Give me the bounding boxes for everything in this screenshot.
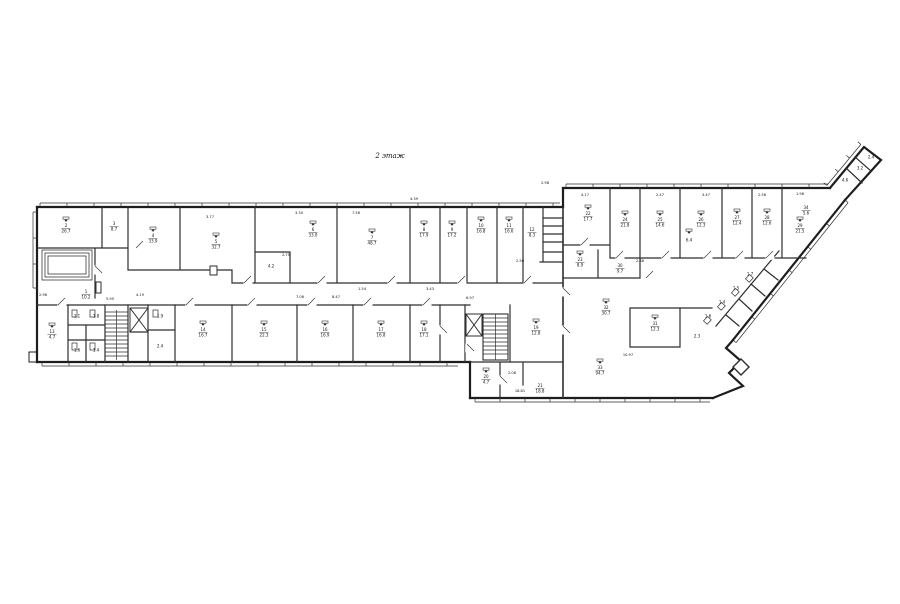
desk-icon [533,319,539,321]
svg-text:32: 32 [603,305,609,310]
room-label: 2514.6 [656,211,665,228]
svg-text:17.2: 17.2 [448,233,457,238]
svg-text:8.9: 8.9 [577,263,584,268]
chair-icon [263,324,265,326]
svg-text:14.6: 14.6 [656,223,665,228]
desk-icon [49,323,55,325]
desk-icon [657,211,663,213]
dimension-label: 2.56 [516,259,525,263]
sanitary-fixtures [72,274,753,350]
svg-text:11: 11 [506,223,512,228]
desk-icon [200,321,206,323]
chair-icon [423,224,425,226]
dimension-label: 4.39 [410,197,419,201]
chair-icon [535,322,537,324]
dimension-label: 7.06 [296,295,305,299]
dimension-label: 1.98 [796,192,805,196]
svg-text:1.5: 1.5 [733,286,740,291]
svg-text:24: 24 [622,217,628,222]
room-label: 433.9 [149,227,158,244]
svg-text:94.7: 94.7 [596,371,605,376]
dimension-label: 2.98 [541,181,550,185]
room-label: 1.6 [74,348,81,353]
chair-icon [688,232,690,234]
room-label: 2921.5 [796,217,805,234]
desk-icon [478,217,484,219]
chair-icon [480,220,482,222]
svg-text:3: 3 [113,221,116,226]
chair-icon [736,212,738,214]
courtyard-steps [42,250,92,280]
room-label: 633.0 [309,221,318,238]
desk-icon [378,321,384,323]
svg-text:17: 17 [378,327,384,332]
svg-text:17.7: 17.7 [584,217,593,222]
desk-icon [622,211,628,213]
room-label: 1016.8 [477,217,486,234]
room-label: 2.3 [694,334,701,339]
chair-icon [508,220,510,222]
room-label: 38.7 [110,221,119,232]
floor-plan-drawing: 2 этаж [0,0,900,604]
dimension-label: 5.95 [106,297,114,301]
room-label: 1817.1 [420,321,429,338]
svg-text:1.9: 1.9 [157,314,164,319]
svg-text:7: 7 [371,235,374,240]
svg-text:1.4: 1.4 [93,348,100,353]
room-label: 2.4 [157,344,164,349]
svg-text:2.4: 2.4 [157,344,164,349]
dimension-label: 2.47 [656,193,664,197]
chair-icon [605,302,607,304]
svg-text:20: 20 [483,374,489,379]
svg-text:2.1: 2.1 [74,314,81,319]
dimension-label: 10.97 [623,353,633,357]
svg-text:27: 27 [734,215,740,220]
chair-icon [659,214,661,216]
chair-icon [579,254,581,256]
chair-icon [51,326,53,328]
room-label: 1.6 [705,314,712,319]
svg-text:1: 1 [85,289,88,294]
svg-text:26: 26 [698,217,704,222]
desk-icon [310,221,316,223]
chair-icon [599,362,601,364]
room-label: 1616.9 [321,321,330,338]
svg-text:33.0: 33.0 [309,233,318,238]
dimension-label: 8.47 [332,295,340,299]
room-label: 309.7 [616,263,625,274]
svg-text:8.3: 8.3 [529,233,536,238]
svg-text:2: 2 [65,223,68,228]
svg-text:32.7: 32.7 [212,245,221,250]
svg-text:1.8: 1.8 [93,314,100,319]
svg-text:25: 25 [657,217,663,222]
svg-text:17.1: 17.1 [420,333,429,338]
chair-icon [451,224,453,226]
svg-text:12.4: 12.4 [733,221,742,226]
room-label: 3394.7 [596,359,605,376]
room-label: 1522.3 [260,321,269,338]
desk-icon [686,229,692,231]
svg-text:12.8: 12.8 [532,331,541,336]
room-labels-layer: 226.738.7433.9532.7633.04.2748.7817.9917… [48,155,875,394]
svg-text:16: 16 [322,327,328,332]
desk-icon [506,217,512,219]
desk-icon [603,299,609,301]
dimension-label: 6.97 [466,296,474,300]
staircase-center [483,314,508,360]
svg-text:30.7: 30.7 [602,311,611,316]
chair-icon [799,220,801,222]
room-label: 1.4 [719,300,726,305]
dimension-label: 2.88 [636,259,645,263]
corner-bay [733,359,749,375]
desk-icon [698,211,704,213]
room-label: 110.2 [82,289,91,300]
chair-icon [654,318,656,320]
svg-text:4.2: 4.2 [268,264,275,269]
svg-text:9.7: 9.7 [617,269,624,274]
svg-text:2.3: 2.3 [694,334,701,339]
svg-text:26.7: 26.7 [62,229,71,234]
room-label: 2712.4 [733,209,742,226]
dimension-label: 2.56 [758,193,767,197]
svg-text:33.9: 33.9 [149,239,158,244]
room-label: 3112.3 [651,315,660,332]
chair-icon [624,214,626,216]
room-label: 1116.6 [505,217,514,234]
room-label: 128.3 [528,227,537,238]
room-label: 1.7 [747,272,754,277]
room-label: 1716.8 [377,321,386,338]
floor-plan-page: 2 этаж [0,0,900,604]
svg-text:5.6: 5.6 [803,211,810,216]
svg-text:3.2: 3.2 [857,166,864,171]
dimension-label: 2.75 [282,253,290,257]
desk-icon [421,221,427,223]
svg-text:4: 4 [152,233,155,238]
svg-text:15: 15 [261,327,267,332]
svg-text:4.7: 4.7 [483,380,490,385]
svg-text:34: 34 [803,205,809,210]
drawing-title: 2 этаж [374,152,404,160]
chair-icon [380,324,382,326]
desk-icon [63,217,69,219]
chair-icon [766,212,768,214]
svg-text:1.7: 1.7 [747,272,754,277]
desk-icon [421,321,427,323]
room-label: 817.9 [420,221,429,238]
chair-icon [371,232,373,234]
svg-text:21.5: 21.5 [796,229,805,234]
room-label: 3.2 [857,166,864,171]
svg-text:21: 21 [537,383,543,388]
chair-icon [423,324,425,326]
desk-icon [369,229,375,231]
room-label: 2612.3 [697,211,706,228]
svg-text:17.9: 17.9 [420,233,429,238]
room-label: 2.4 [868,155,875,160]
room-label: 134.7 [48,323,57,340]
room-label: 748.7 [368,229,377,246]
staircase-left [105,310,128,360]
room-label: 2118.8 [536,383,545,394]
dimension-label: 4.17 [581,193,589,197]
svg-text:13: 13 [49,329,55,334]
chair-icon [700,214,702,216]
svg-text:16.6: 16.6 [505,229,514,234]
chair-icon [312,224,314,226]
dimension-label: 1.54 [358,287,367,291]
chair-icon [587,208,589,210]
chair-icon [202,324,204,326]
svg-text:4.7: 4.7 [49,335,56,340]
room-label: 1.4 [93,348,100,353]
dimension-label: 3.30 [295,211,304,215]
desk-icon [322,321,328,323]
room-label: 1.8 [93,314,100,319]
dimension-label: 2.96 [39,293,48,297]
dimension-label: 2.08 [508,371,517,375]
svg-text:12.3: 12.3 [697,223,706,228]
svg-text:1.6: 1.6 [74,348,81,353]
svg-text:6.4: 6.4 [686,238,693,243]
room-label: 2.1 [74,314,81,319]
columns [96,266,749,375]
svg-text:33: 33 [597,365,603,370]
dimension-label: 3.77 [206,215,214,219]
desk-icon [577,251,583,253]
svg-text:22.3: 22.3 [260,333,269,338]
svg-text:29: 29 [797,223,803,228]
svg-text:12.3: 12.3 [651,327,660,332]
room-label: 1912.8 [532,319,541,336]
svg-text:22: 22 [585,211,591,216]
elevator-shaft-left [130,308,148,332]
svg-text:19: 19 [533,325,539,330]
desk-icon [652,315,658,317]
svg-text:18.8: 18.8 [536,389,545,394]
svg-text:16.8: 16.8 [477,229,486,234]
room-label: 1416.7 [199,321,208,338]
chair-icon [324,324,326,326]
room-label: 345.6 [802,205,811,216]
desk-icon [213,233,219,235]
room-label: 917.2 [448,221,457,238]
svg-text:8.7: 8.7 [111,227,118,232]
room-label: 2812.6 [763,209,772,226]
svg-text:48.7: 48.7 [368,241,377,246]
room-label: 4.6 [842,178,849,183]
chair-icon [485,371,487,373]
dimension-label: 7.56 [352,211,361,215]
svg-text:8: 8 [423,227,426,232]
svg-text:31: 31 [652,321,658,326]
svg-text:6: 6 [312,227,315,232]
svg-text:16.7: 16.7 [199,333,208,338]
desk-icon [261,321,267,323]
svg-text:10.2: 10.2 [82,295,91,300]
room-label: 2421.8 [621,211,630,228]
desk-icon [449,221,455,223]
desk-icon [483,368,489,370]
desk-icon [585,205,591,207]
svg-text:2.4: 2.4 [868,155,875,160]
room-label: 4.2 [268,264,275,269]
svg-text:18: 18 [421,327,427,332]
chair-icon [65,220,67,222]
svg-text:30: 30 [617,263,623,268]
room-label: 226.7 [62,217,71,234]
chair-icon [152,230,154,232]
svg-text:12: 12 [529,227,535,232]
desk-icon [797,217,803,219]
svg-text:10: 10 [478,223,484,228]
svg-text:12.6: 12.6 [763,221,772,226]
dimension-label: 3.43 [426,287,434,291]
room-label: 2217.7 [584,205,593,222]
desk-icon [597,359,603,361]
svg-text:9: 9 [451,227,454,232]
svg-text:16.8: 16.8 [377,333,386,338]
svg-text:14: 14 [200,327,206,332]
svg-text:23: 23 [577,257,583,262]
room-label: 3230.7 [602,299,611,316]
room-label: 6.4 [686,229,693,243]
dimension-label: 18.81 [515,389,525,393]
svg-text:21.8: 21.8 [621,223,630,228]
room-label: 1.9 [157,314,164,319]
svg-text:28: 28 [764,215,770,220]
svg-text:4.6: 4.6 [842,178,849,183]
desk-icon [764,209,770,211]
room-label: 1.5 [733,286,740,291]
svg-text:1.6: 1.6 [705,314,712,319]
room-label: 532.7 [212,233,221,250]
dimension-label: 3.47 [702,193,710,197]
svg-text:5: 5 [215,239,218,244]
dimension-label: 4.19 [136,293,145,297]
elevator-shaft-center [466,314,482,336]
room-label: 204.7 [482,368,491,385]
chair-icon [215,236,217,238]
desk-icon [150,227,156,229]
svg-text:16.9: 16.9 [321,333,330,338]
room-label: 238.9 [576,251,585,268]
desk-icon [734,209,740,211]
exterior-walls [29,147,881,398]
svg-text:1.4: 1.4 [719,300,726,305]
